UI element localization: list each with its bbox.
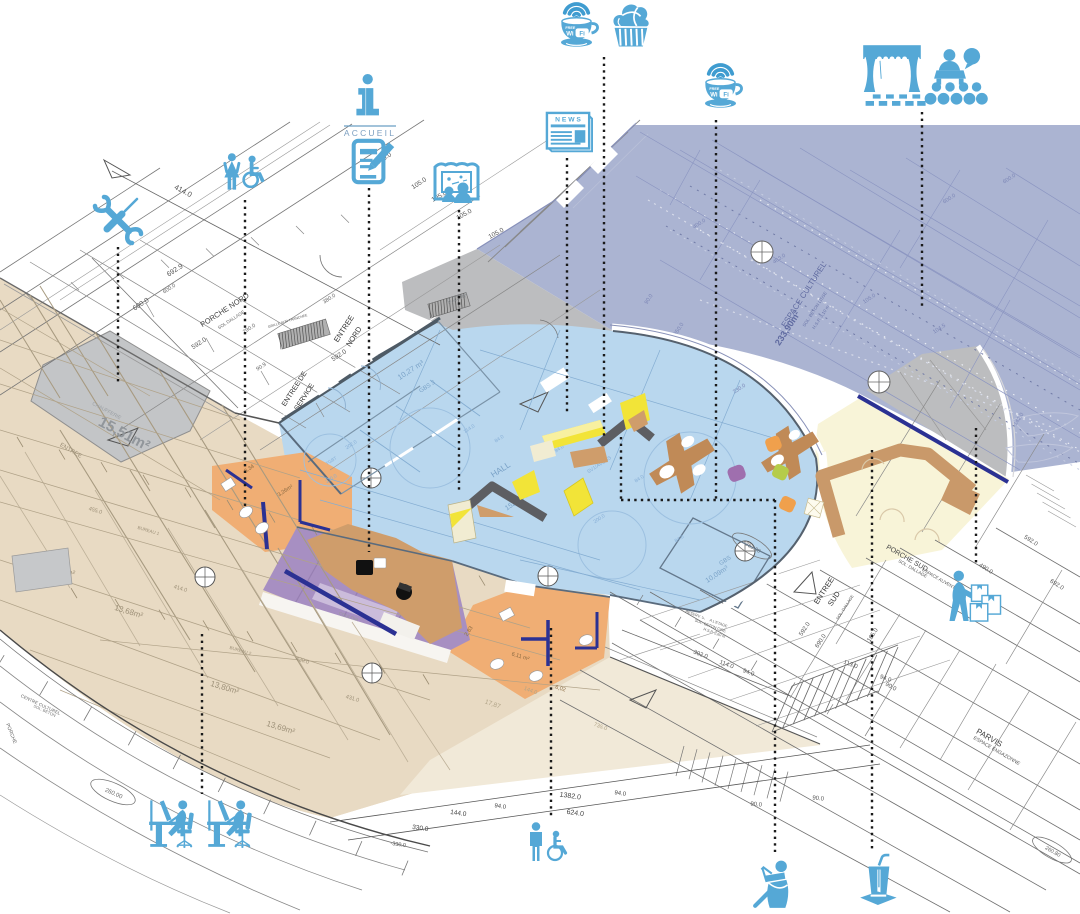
svg-text:FREE: FREE xyxy=(565,26,576,30)
svg-text:ACCUEIL: ACCUEIL xyxy=(344,128,396,138)
svg-text:90.0: 90.0 xyxy=(812,795,825,802)
svg-text:Fi: Fi xyxy=(579,30,585,37)
svg-text:N E W S: N E W S xyxy=(555,117,581,124)
svg-text:90.0: 90.0 xyxy=(750,801,763,808)
svg-text:Wi: Wi xyxy=(566,30,574,37)
svg-text:Fi: Fi xyxy=(723,91,729,98)
svg-text:Wi: Wi xyxy=(710,91,718,98)
svg-text:FREE: FREE xyxy=(709,87,720,91)
